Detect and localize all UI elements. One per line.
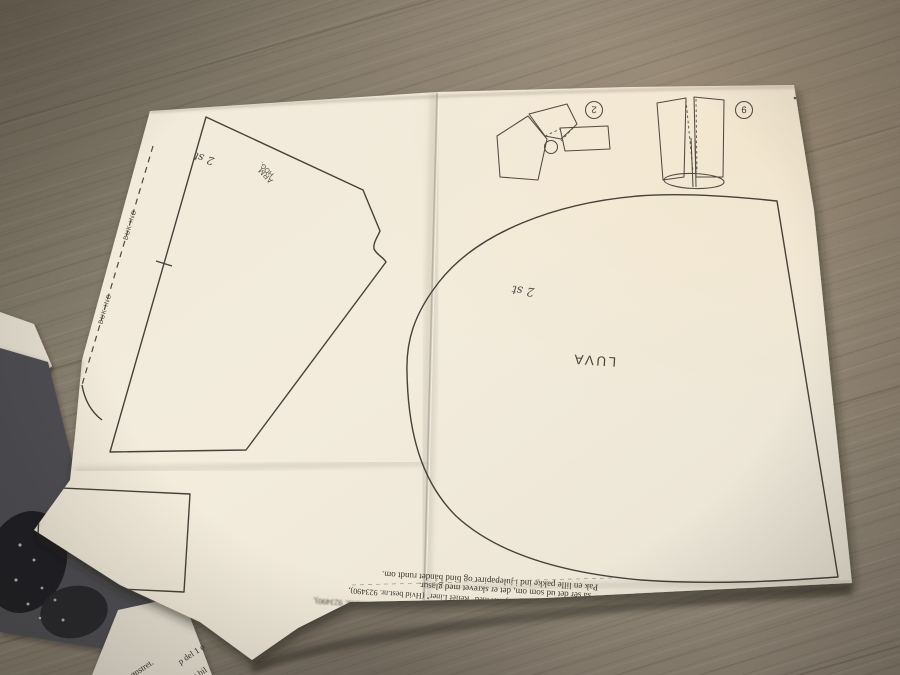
wood-floor: ønstret. p del 1 o t bil [0,0,900,675]
paper-speck [794,97,797,100]
photo-composition: ønstret. p del 1 o t bil [0,0,900,675]
diagram-2-number: 9 [741,103,747,114]
hood-qty-label: 2 st [511,283,536,300]
diagram-1-number: 2 [591,103,597,114]
hood-name-label: LUVA [571,351,616,369]
